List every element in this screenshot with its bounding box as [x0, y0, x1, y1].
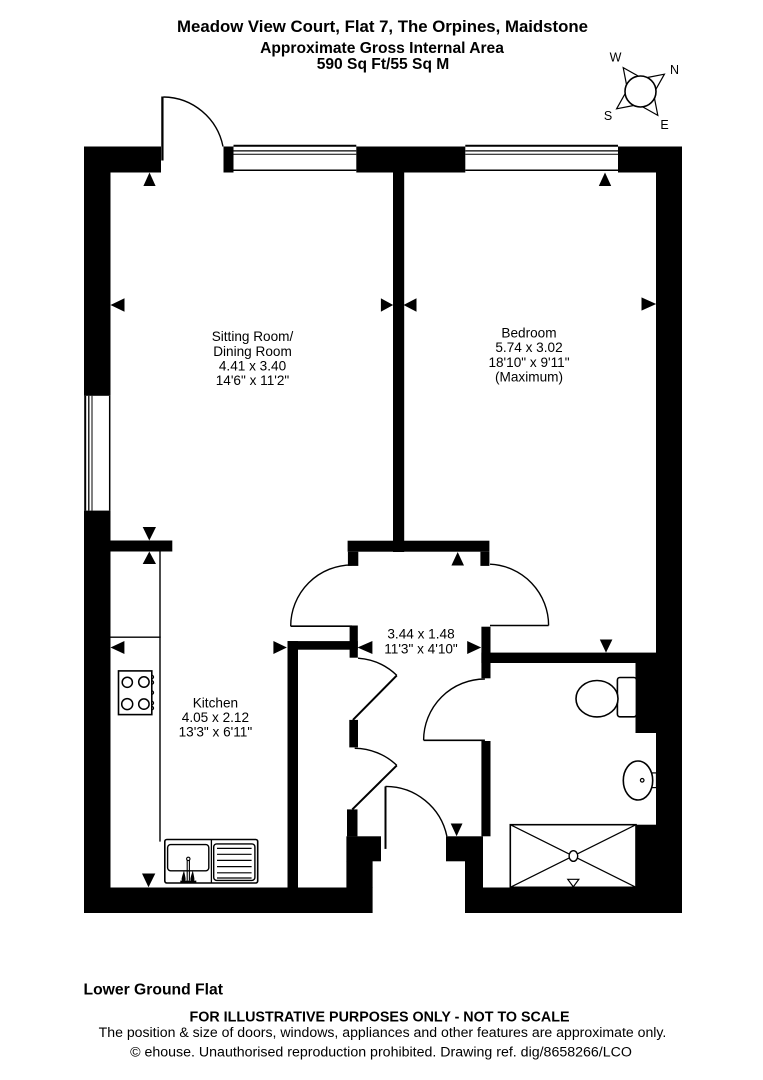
svg-text:S: S — [604, 109, 612, 123]
svg-text:Bedroom: Bedroom — [501, 326, 556, 341]
svg-text:Lower Ground Flat: Lower Ground Flat — [84, 981, 224, 998]
svg-text:Approximate Gross Internal Are: Approximate Gross Internal Area — [260, 40, 504, 57]
svg-text:4.41 x 3.40: 4.41 x 3.40 — [219, 359, 287, 374]
svg-text:4.05 x 2.12: 4.05 x 2.12 — [182, 710, 249, 725]
svg-text:N: N — [670, 63, 679, 77]
svg-text:Kitchen: Kitchen — [193, 695, 238, 710]
svg-text:18'10" x 9'11": 18'10" x 9'11" — [488, 355, 569, 370]
svg-text:11'3" x 4'10": 11'3" x 4'10" — [384, 641, 458, 656]
svg-text:14'6" x 11'2": 14'6" x 11'2" — [216, 373, 290, 388]
svg-text:3.44 x 1.48: 3.44 x 1.48 — [387, 627, 454, 642]
svg-text:Dining Room: Dining Room — [213, 344, 292, 359]
svg-text:5.74 x 3.02: 5.74 x 3.02 — [495, 340, 562, 355]
svg-text:(Maximum): (Maximum) — [495, 370, 563, 385]
svg-text:E: E — [660, 118, 668, 132]
svg-text:W: W — [610, 51, 622, 65]
svg-text:FOR ILLUSTRATIVE PURPOSES ONLY: FOR ILLUSTRATIVE PURPOSES ONLY - NOT TO … — [190, 1009, 570, 1025]
svg-text:Meadow View Court, Flat 7, The: Meadow View Court, Flat 7, The Orpines, … — [177, 17, 588, 36]
svg-text:© ehouse. Unauthorised reprodu: © ehouse. Unauthorised reproduction proh… — [130, 1044, 632, 1060]
svg-text:13'3" x 6'11": 13'3" x 6'11" — [179, 725, 253, 740]
svg-text:590 Sq Ft/55 Sq M: 590 Sq Ft/55 Sq M — [317, 56, 450, 73]
svg-text:Sitting Room/: Sitting Room/ — [212, 329, 294, 344]
svg-text:The position & size of doors,: The position & size of doors, windows, a… — [99, 1024, 667, 1040]
